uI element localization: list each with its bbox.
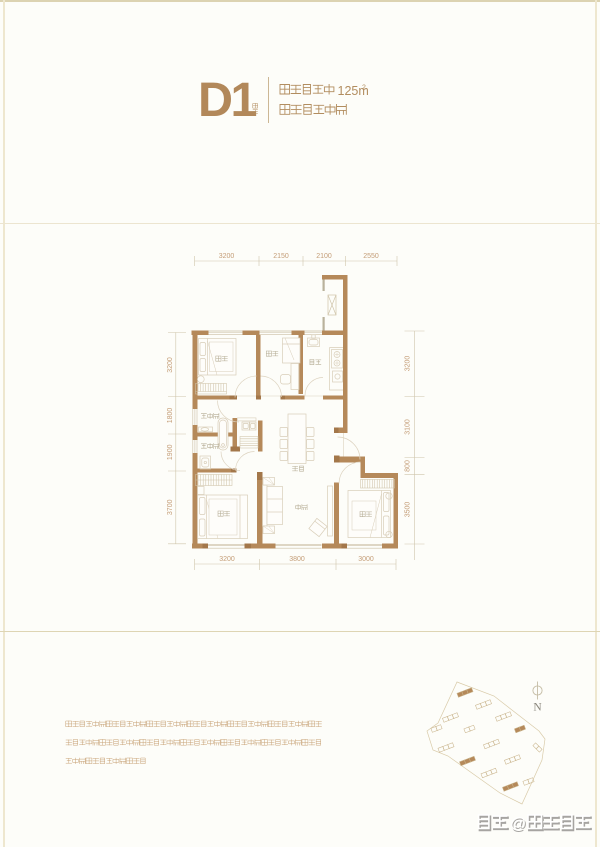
svg-text:2150: 2150 xyxy=(273,253,289,260)
svg-text:3200: 3200 xyxy=(167,357,174,373)
svg-text:2100: 2100 xyxy=(316,253,332,260)
svg-text:N: N xyxy=(533,702,542,714)
svg-text:3200: 3200 xyxy=(219,556,235,563)
svg-text:1800: 1800 xyxy=(167,408,174,424)
svg-text:3200: 3200 xyxy=(405,356,412,372)
svg-text:800: 800 xyxy=(405,460,412,472)
svg-text:3200: 3200 xyxy=(219,253,235,260)
svg-text:@: @ xyxy=(510,816,526,833)
svg-text:2550: 2550 xyxy=(363,253,379,260)
svg-text:3500: 3500 xyxy=(405,502,412,518)
svg-text:3800: 3800 xyxy=(289,556,305,563)
svg-text:3700: 3700 xyxy=(167,499,174,515)
svg-text:2: 2 xyxy=(362,85,366,92)
svg-text:3100: 3100 xyxy=(405,419,412,435)
svg-text:1900: 1900 xyxy=(167,444,174,460)
svg-text:3000: 3000 xyxy=(358,556,374,563)
